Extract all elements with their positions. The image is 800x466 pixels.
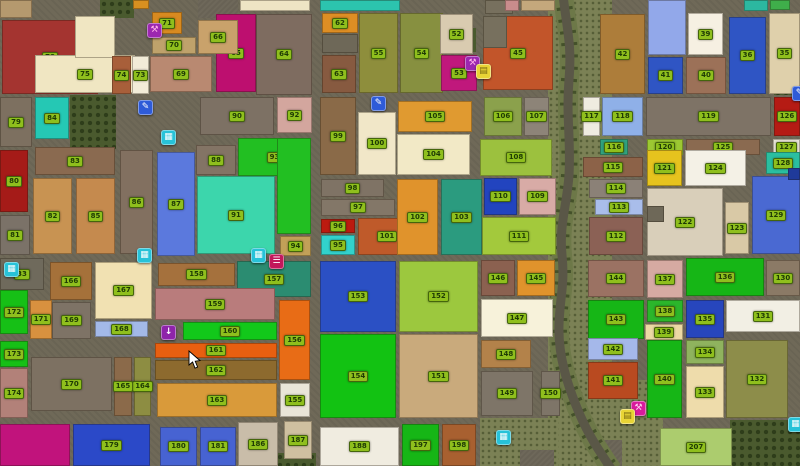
note-icon[interactable]: ▤ [476, 64, 491, 79]
note-icon[interactable]: ▤ [620, 409, 635, 424]
harvester-icon-glyph: ▦ [7, 265, 16, 274]
silo-icon-glyph: ▦ [791, 420, 800, 429]
unload-point-icon-glyph: ↓ [165, 328, 173, 337]
dealer-icon[interactable]: ✎ [138, 100, 153, 115]
dealer-icon-glyph: ✎ [796, 89, 800, 98]
silo-icon[interactable]: ▦ [788, 417, 800, 432]
production-icon-glyph: ⚒ [150, 26, 158, 35]
dealer-icon-glyph: ✎ [375, 99, 383, 108]
silo-icon[interactable]: ▦ [251, 248, 266, 263]
dealer-icon[interactable]: ✎ [371, 96, 386, 111]
bus-stop-icon[interactable]: ☰ [269, 254, 284, 269]
production-icon-glyph: ⚒ [634, 404, 642, 413]
harvester-icon[interactable]: ▦ [4, 262, 19, 277]
silo-icon[interactable]: ▦ [496, 430, 511, 445]
silo-icon[interactable]: ▦ [161, 130, 176, 145]
silo-icon-glyph: ▦ [254, 251, 263, 260]
silo-icon[interactable]: ▦ [137, 248, 152, 263]
icons-layer: ⚒✎▦✎⚒▤✎▦▦☰▦↓▦⚒▤▦ [0, 0, 800, 466]
dealer-icon[interactable]: ✎ [792, 86, 800, 101]
dealer-icon-glyph: ✎ [142, 103, 150, 112]
silo-icon-glyph: ▦ [164, 133, 173, 142]
silo-icon-glyph: ▦ [140, 251, 149, 260]
unload-point-icon[interactable]: ↓ [161, 325, 176, 340]
note-icon-glyph: ▤ [623, 412, 632, 421]
silo-icon-glyph: ▦ [499, 433, 508, 442]
bus-stop-icon-glyph: ☰ [272, 257, 280, 266]
production-icon[interactable]: ⚒ [147, 23, 162, 38]
map-stage: 7875717069747365666462635554525345424139… [0, 0, 800, 466]
note-icon-glyph: ▤ [479, 67, 488, 76]
